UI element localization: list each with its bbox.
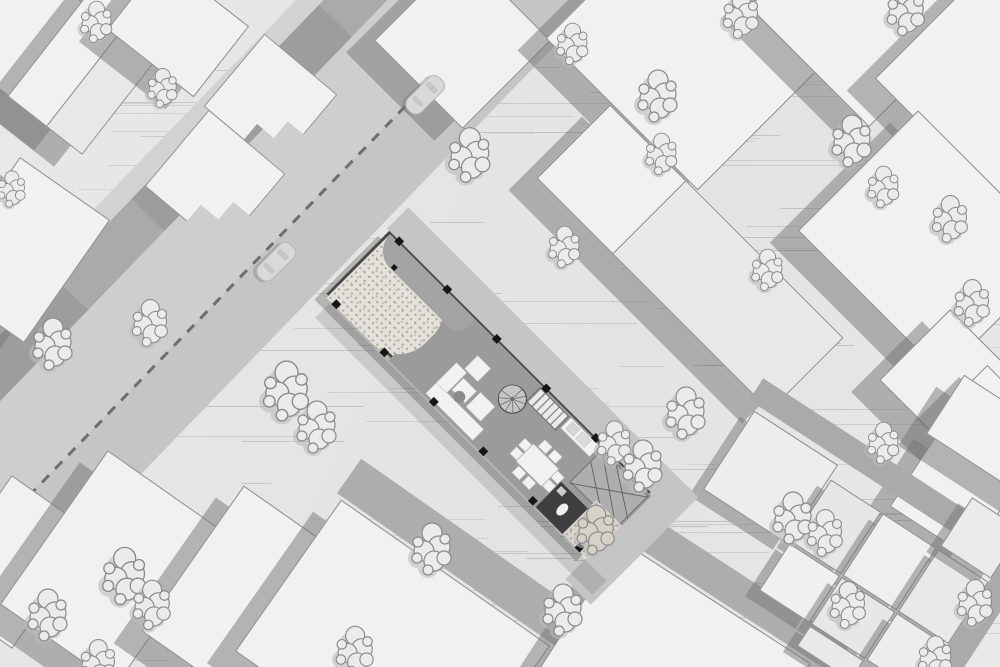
car-rear-window: [412, 95, 425, 108]
car-rear-window: [263, 262, 276, 275]
car: [253, 239, 300, 286]
car: [402, 72, 449, 119]
car-windshield: [276, 248, 289, 261]
site-plan-scene: [0, 0, 1000, 667]
car-windshield: [425, 81, 438, 94]
cars-layer: [0, 0, 1000, 667]
